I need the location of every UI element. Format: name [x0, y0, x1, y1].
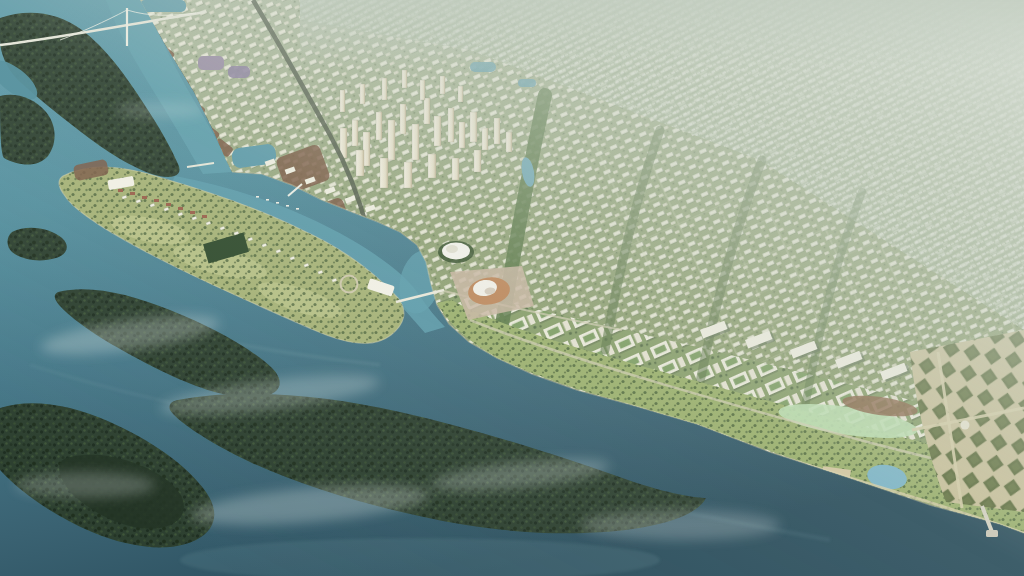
- horizon-fade: [300, 0, 1024, 70]
- aerial-render: [0, 0, 1024, 576]
- sky-haze: [0, 0, 1024, 576]
- aerial-render-figure: [0, 0, 1024, 576]
